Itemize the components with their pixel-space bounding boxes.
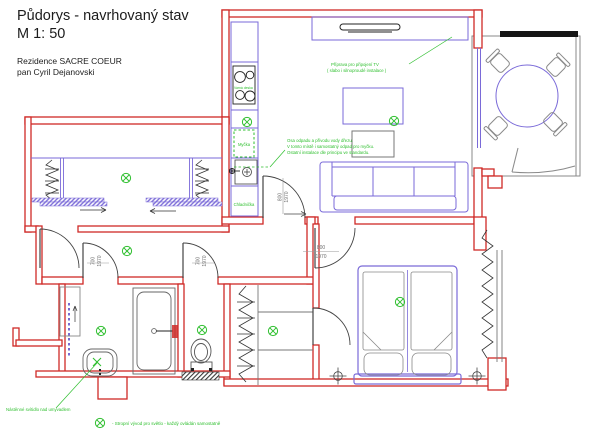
legend: - Stropní vývod pro světlo - každý ovlád… — [95, 418, 220, 427]
svg-text:Ostatní instalace dle principu: Ostatní instalace dle principu ve standa… — [287, 150, 369, 155]
closet-left-rail — [45, 160, 59, 200]
fridge-label: Chladnička — [234, 202, 255, 207]
light-outlet — [96, 326, 105, 335]
page-title: Půdorys - navrhovaný stav — [17, 8, 189, 26]
door-closet — [313, 308, 350, 345]
note-tv: Příprava pro připojení TV ( slabo i siln… — [327, 37, 452, 73]
note-sink: Osa odpadu a přívodu vody dřezu. V tomto… — [234, 138, 374, 167]
ceiling-light-outlet-icon — [95, 418, 104, 427]
drawing-scale: M 1: 50 — [17, 26, 189, 44]
project-name: Rezidence SACRE COEUR — [17, 56, 189, 67]
svg-text:Nástěnné svítidlo nad umyvadle: Nástěnné svítidlo nad umyvadlem — [6, 407, 71, 412]
client-name: pan Cyril Dejanovski — [17, 67, 189, 78]
balcony-door — [512, 148, 575, 173]
light-outlet — [242, 117, 251, 126]
balcony-chair — [541, 110, 567, 136]
legend-text: - Stropní vývod pro světlo - každý ovlád… — [112, 421, 221, 426]
svg-text:Příprava pro připojení TV: Příprava pro připojení TV — [331, 62, 379, 67]
dishwasher-box: Myčka — [234, 130, 254, 157]
svg-text:( slabo i silnoproudé instalac: ( slabo i silnoproudé instalace ) — [327, 68, 387, 73]
tv-bench — [312, 17, 468, 40]
light-outlet — [197, 325, 206, 334]
tv — [340, 24, 400, 32]
cooktop — [233, 66, 255, 104]
svg-text:700: 700 — [91, 257, 97, 266]
svg-text:V tomto místě i samostatný odp: V tomto místě i samostatný odpad pro myč… — [287, 144, 374, 149]
dim-kitchen-door: 800 1970 — [278, 178, 290, 214]
closet-rail — [237, 286, 255, 382]
dishwasher-label: Myčka — [238, 142, 251, 147]
sliding-door-track — [32, 198, 222, 206]
light-outlet — [268, 326, 277, 335]
light-outlet — [395, 297, 404, 306]
bathtub — [133, 288, 175, 374]
wc-mat — [182, 372, 219, 380]
dim-bathroom-door: 700 1970 — [87, 255, 109, 266]
wardrobe-room — [31, 158, 222, 214]
closet-right-rail — [195, 160, 209, 200]
svg-text:1970: 1970 — [315, 254, 326, 260]
svg-text:700: 700 — [196, 257, 202, 266]
coffee-table — [343, 88, 403, 124]
sofa — [320, 162, 468, 212]
balcony — [472, 31, 580, 176]
water-connection — [172, 325, 178, 338]
light-outlet — [121, 173, 130, 182]
svg-text:800: 800 — [317, 245, 326, 251]
balcony-railing — [500, 31, 578, 37]
title-block: Půdorys - navrhovaný stav M 1: 50 Rezide… — [17, 8, 189, 78]
bed — [354, 266, 461, 384]
riser-arrow — [73, 306, 77, 322]
toilet — [191, 339, 212, 373]
light-outlet — [122, 246, 131, 255]
kitchen-sink — [229, 160, 257, 184]
cooktop-label: Varná deska — [234, 86, 253, 90]
svg-text:1970: 1970 — [97, 255, 103, 266]
svg-text:800: 800 — [278, 193, 284, 202]
door-wardrobe-room — [40, 229, 79, 268]
balcony-chair — [486, 49, 512, 75]
floor-plan-sheet: Půdorys - navrhovaný stav M 1: 50 Rezide… — [0, 0, 600, 432]
svg-text:Osa odpadu a přívodu vody dřez: Osa odpadu a přívodu vody dřezu. — [287, 138, 353, 143]
closet-shelves — [258, 285, 313, 385]
window — [478, 48, 481, 148]
balcony-table — [496, 65, 558, 127]
sliding-arrow — [80, 208, 176, 214]
svg-text:1970: 1970 — [202, 255, 208, 266]
svg-text:1970: 1970 — [284, 191, 290, 202]
balcony-chair — [544, 53, 570, 79]
